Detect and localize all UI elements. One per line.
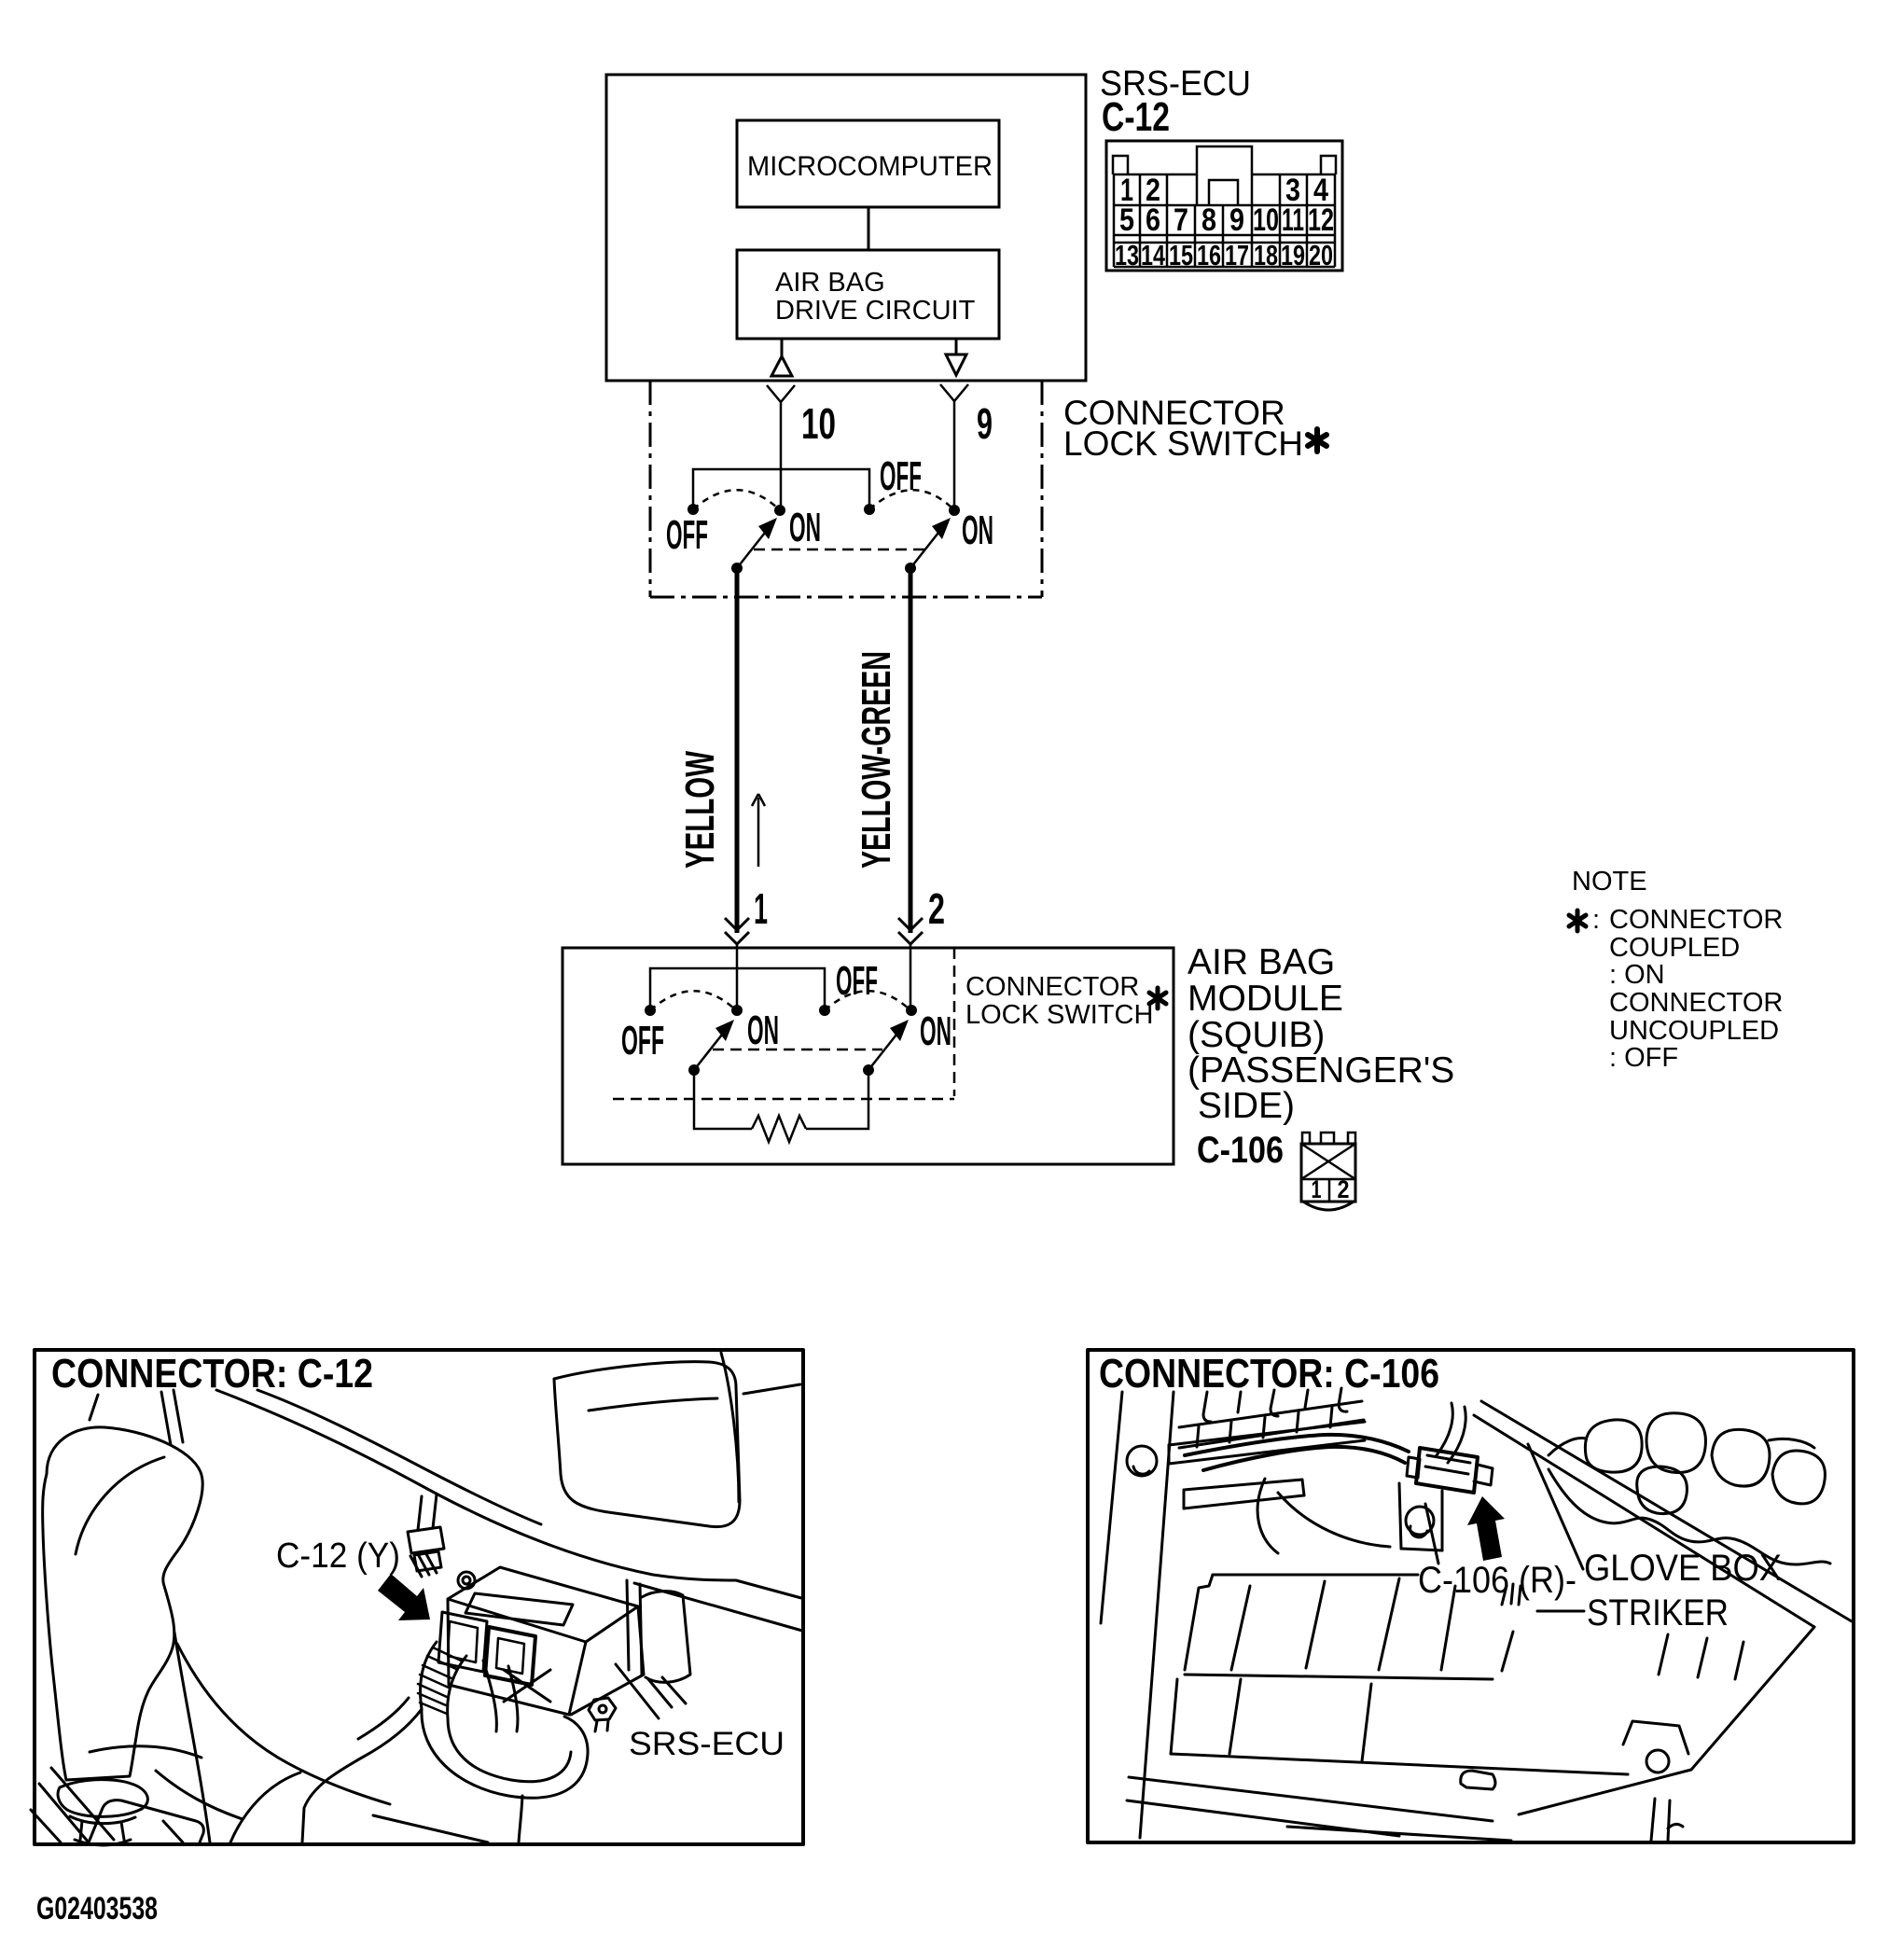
svg-text:MICROCOMPUTER: MICROCOMPUTER [747, 151, 993, 182]
svg-text:9: 9 [1229, 202, 1244, 238]
svg-text:NOTE: NOTE [1572, 867, 1647, 897]
svg-text:10: 10 [1253, 202, 1279, 238]
svg-text:(PASSENGER'S: (PASSENGER'S [1188, 1050, 1454, 1091]
svg-text:(SQUIB): (SQUIB) [1188, 1015, 1325, 1055]
svg-text:15: 15 [1169, 239, 1193, 271]
svg-text:12: 12 [1308, 202, 1334, 238]
svg-text:CONNECTOR: C-106: CONNECTOR: C-106 [1099, 1351, 1439, 1397]
svg-text:SRS-ECU: SRS-ECU [629, 1726, 785, 1762]
svg-text:LOCK SWITCH: LOCK SWITCH [1063, 424, 1303, 463]
svg-text:13: 13 [1115, 239, 1139, 271]
svg-text:11: 11 [1282, 202, 1304, 238]
svg-text:: OFF: : OFF [1609, 1043, 1678, 1073]
svg-text:CONNECTOR: CONNECTOR [1609, 988, 1783, 1018]
svg-text:CONNECTOR: CONNECTOR [965, 972, 1139, 1002]
svg-text:18: 18 [1254, 239, 1278, 271]
svg-text:ON: ON [747, 1008, 779, 1053]
svg-text:C-12: C-12 [1102, 94, 1170, 140]
svg-text:STRIKER: STRIKER [1587, 1592, 1729, 1633]
svg-text:C-106 (R)-: C-106 (R)- [1418, 1560, 1576, 1601]
svg-text:17: 17 [1225, 239, 1249, 271]
svg-text:9: 9 [977, 399, 993, 448]
svg-text:2: 2 [928, 884, 945, 933]
svg-text:6: 6 [1146, 202, 1160, 238]
svg-text:8: 8 [1201, 202, 1216, 238]
svg-text:LOCK SWITCH: LOCK SWITCH [965, 1000, 1153, 1030]
svg-text:DRIVE CIRCUIT: DRIVE CIRCUIT [775, 296, 976, 326]
svg-text::: : [1592, 905, 1600, 935]
svg-text:ON: ON [920, 1008, 951, 1054]
svg-text:YELLOW-GREEN: YELLOW-GREEN [854, 651, 899, 869]
svg-text:5: 5 [1119, 202, 1134, 238]
svg-text:: ON: : ON [1609, 960, 1665, 990]
svg-text:2: 2 [1338, 1175, 1350, 1203]
svg-text:1: 1 [1312, 1175, 1322, 1203]
svg-text:CONNECTOR: C-12: CONNECTOR: C-12 [51, 1351, 373, 1397]
svg-text:G02403538: G02403538 [36, 1891, 158, 1926]
svg-text:COUPLED: COUPLED [1609, 933, 1740, 963]
svg-text:OFF: OFF [621, 1018, 664, 1063]
svg-text:YELLOW: YELLOW [677, 751, 723, 869]
svg-text:OFF: OFF [880, 453, 922, 499]
svg-text:10: 10 [801, 399, 836, 448]
svg-text:AIR BAG: AIR BAG [1188, 942, 1335, 982]
svg-text:CONNECTOR: CONNECTOR [1609, 905, 1783, 935]
svg-text:OFF: OFF [666, 512, 708, 558]
svg-text:19: 19 [1281, 239, 1305, 271]
svg-text:AIR BAG: AIR BAG [775, 268, 885, 298]
svg-text:UNCOUPLED: UNCOUPLED [1609, 1016, 1779, 1046]
svg-text:GLOVE BOX: GLOVE BOX [1584, 1548, 1782, 1589]
svg-text:20: 20 [1309, 239, 1333, 271]
svg-text:1: 1 [754, 884, 768, 933]
svg-text:C-12 (Y): C-12 (Y) [276, 1536, 400, 1576]
svg-text:SIDE): SIDE) [1198, 1086, 1295, 1126]
svg-text:C-106: C-106 [1197, 1130, 1284, 1171]
svg-text:14: 14 [1141, 239, 1166, 271]
svg-text:7: 7 [1174, 202, 1188, 238]
svg-text:ON: ON [789, 505, 821, 550]
svg-text:ON: ON [962, 507, 993, 553]
svg-text:16: 16 [1197, 239, 1221, 271]
svg-text:MODULE: MODULE [1188, 979, 1343, 1019]
svg-text:OFF: OFF [836, 958, 878, 1004]
